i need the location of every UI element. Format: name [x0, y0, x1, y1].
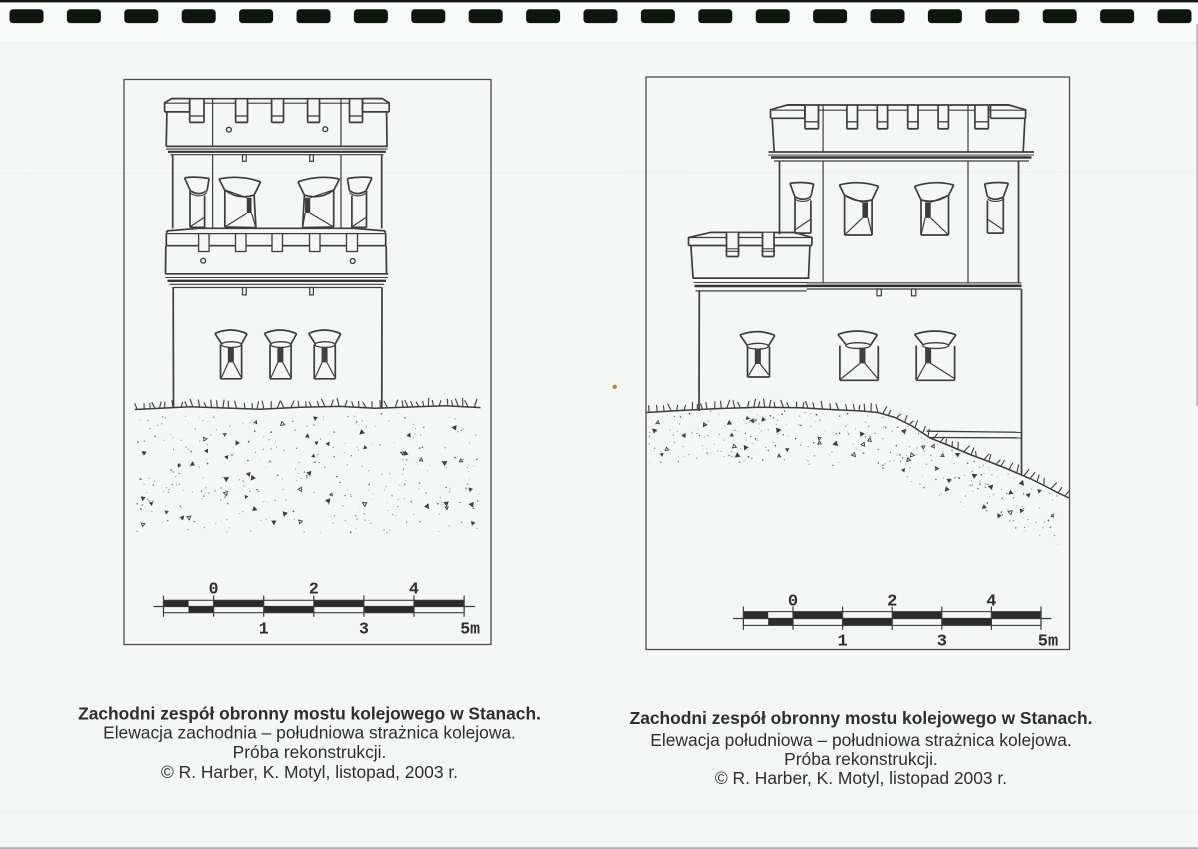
svg-text:2: 2: [887, 592, 897, 611]
svg-text:3: 3: [937, 632, 947, 651]
svg-text:© R. Harber, K. Motyl, listopa: © R. Harber, K. Motyl, listopad 2003 r.: [715, 768, 1007, 788]
svg-text:1: 1: [837, 632, 847, 651]
svg-text:© R. Harber, K. Motyl, listopa: © R. Harber, K. Motyl, listopad, 2003 r.: [161, 762, 458, 782]
svg-text:Zachodni zespół obronny mostu: Zachodni zespół obronny mostu kolejowego…: [630, 708, 1093, 728]
svg-text:Elewacja zachodnia – południow: Elewacja zachodnia – południowa strażnic…: [103, 723, 516, 743]
svg-text:4: 4: [409, 580, 419, 599]
svg-text:3: 3: [359, 620, 369, 639]
svg-text:Zachodni zespół obronny mostu: Zachodni zespół obronny mostu kolejowego…: [78, 704, 541, 724]
svg-text:Próba rekonstrukcji.: Próba rekonstrukcji.: [233, 742, 387, 762]
svg-text:Elewacja południowa – południo: Elewacja południowa – południowa strażni…: [650, 730, 1072, 750]
svg-text:0: 0: [209, 580, 219, 599]
svg-text:5m: 5m: [460, 620, 480, 639]
svg-text:2: 2: [309, 580, 319, 599]
svg-text:0: 0: [788, 592, 798, 611]
svg-text:5m: 5m: [1038, 632, 1058, 651]
svg-text:1: 1: [259, 620, 269, 639]
svg-text:4: 4: [986, 592, 996, 611]
svg-text:Próba rekonstrukcji.: Próba rekonstrukcji.: [784, 749, 938, 769]
